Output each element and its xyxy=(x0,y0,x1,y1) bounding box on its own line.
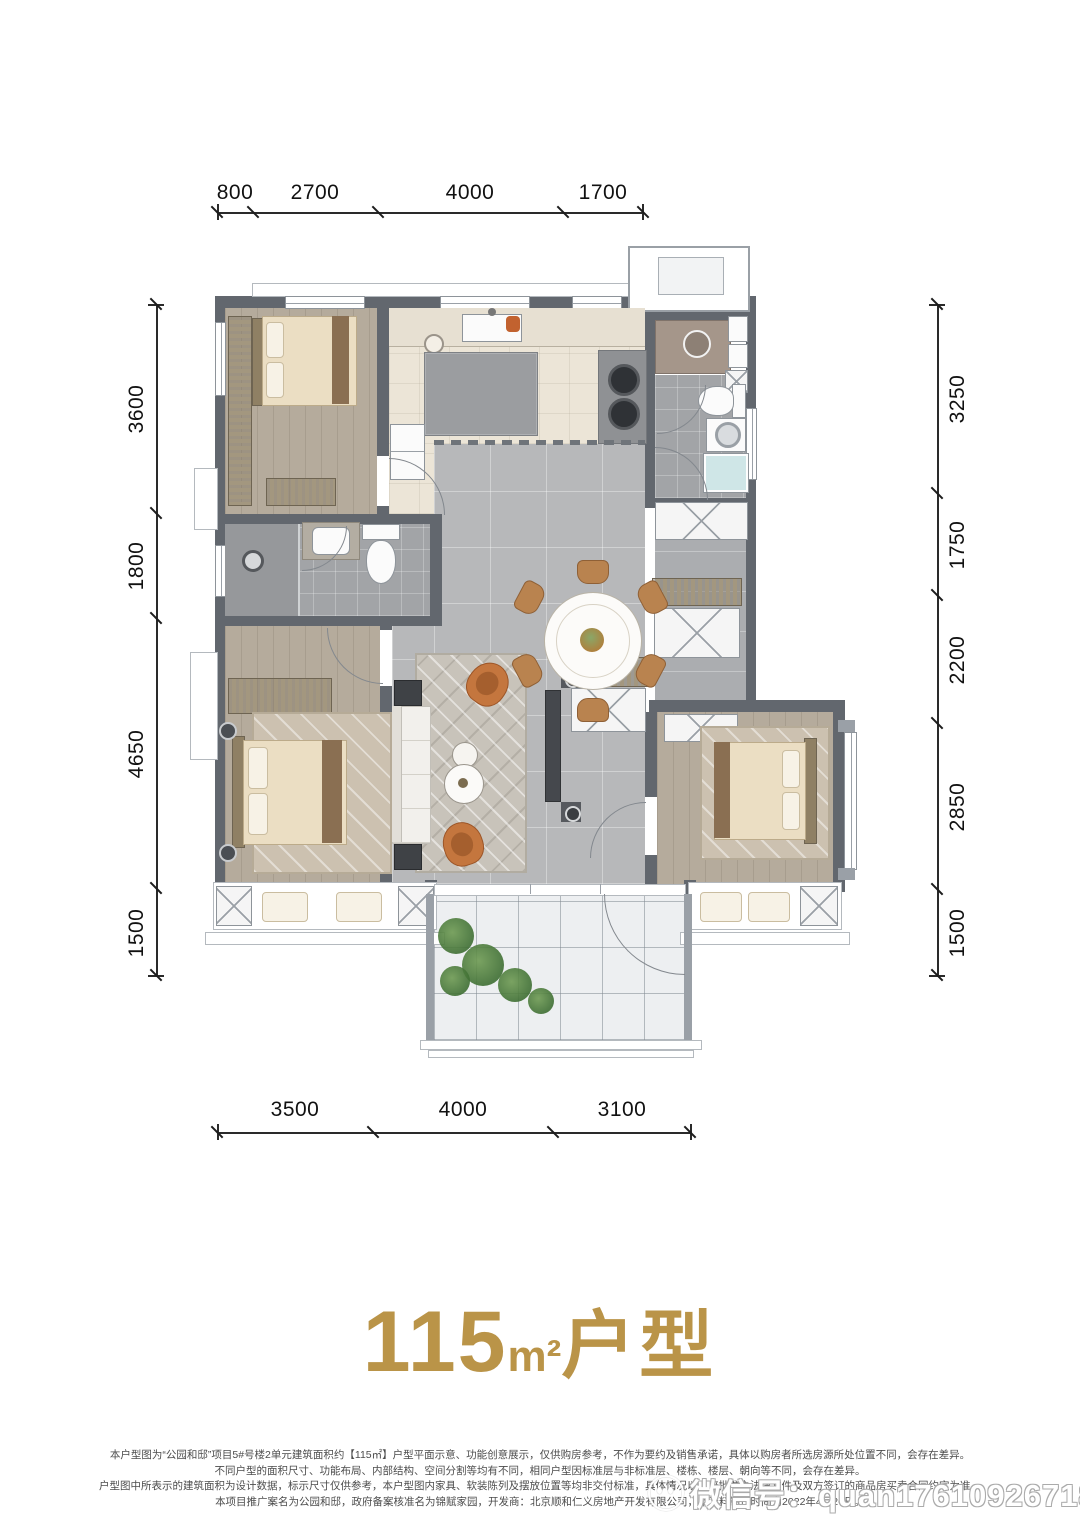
master-wardrobe xyxy=(228,678,332,714)
wall-bath1-bottom xyxy=(215,616,442,626)
dim-line xyxy=(156,304,158,976)
dim-label: 2700 xyxy=(270,181,360,205)
bay-cap-bottom xyxy=(838,868,855,880)
balcony-plant xyxy=(440,966,470,996)
bedroom2-pillow xyxy=(266,362,284,398)
dining-chair xyxy=(577,560,609,584)
bedroom2-pillow xyxy=(266,322,284,358)
balcony-plant xyxy=(528,988,554,1014)
laundry-cabinet xyxy=(728,316,748,342)
dim-label: 1700 xyxy=(558,181,648,205)
dim-line xyxy=(217,1132,690,1134)
laundry-cabinet xyxy=(728,344,748,368)
window-seat-cushion xyxy=(700,892,742,922)
dim-label: 1800 xyxy=(125,521,149,611)
wall-bed2-kitchen xyxy=(377,296,389,456)
dim-line xyxy=(937,304,939,976)
kitchen-threshold xyxy=(434,440,645,445)
plan-title-suffix: 户型 xyxy=(561,1304,717,1387)
dim-label: 4650 xyxy=(125,709,149,799)
bedroom2-wardrobe xyxy=(228,316,252,506)
dining-chair xyxy=(577,698,609,722)
disclaimer-line: 本户型图为“公园和邸”项目5#号楼2单元建筑面积约【115㎡】户型平面示意、功能… xyxy=(60,1448,1020,1464)
balcony-outer-sill xyxy=(428,1050,694,1058)
dim-label: 3100 xyxy=(577,1098,667,1122)
balcony-wall-left xyxy=(426,894,434,1046)
sofa-back xyxy=(392,706,402,842)
watermark-text: 微信号：quan17610926718 xyxy=(690,1470,1080,1515)
dim-label: 4000 xyxy=(418,1098,508,1122)
plan-title: 115m²户型 xyxy=(0,1286,1080,1393)
balcony-door-divider xyxy=(530,884,531,894)
toilet2-tank xyxy=(732,384,746,418)
balcony-wall-right xyxy=(684,894,692,1046)
dim-label: 1500 xyxy=(125,888,149,978)
window-bedroom2 xyxy=(285,296,365,309)
window-seat-xbox xyxy=(216,886,252,926)
dim-label: 1500 xyxy=(946,888,970,978)
wall-bed3-top xyxy=(649,700,845,712)
wechat-face-icon xyxy=(648,1475,684,1511)
wall-bath1-right xyxy=(430,514,442,626)
stove-burner-icon xyxy=(608,398,640,430)
nook-cabinet xyxy=(654,608,740,658)
shower-area xyxy=(225,524,300,616)
kitchen-island xyxy=(424,352,538,436)
niche-left-top xyxy=(194,468,218,530)
plan-title-unit: m² xyxy=(507,1332,561,1381)
window-seat-cushion xyxy=(336,892,382,922)
window-left-bedroom2 xyxy=(215,322,226,396)
speaker-icon xyxy=(565,806,581,822)
wall-lamp-icon xyxy=(219,722,237,740)
bedroom3-pillow xyxy=(782,750,800,788)
sofa-side-table xyxy=(394,680,422,706)
dim-label: 800 xyxy=(190,181,280,205)
stove-burner-icon xyxy=(608,364,640,396)
wall-bed3-left-a xyxy=(645,712,657,797)
bay-left-master xyxy=(190,652,218,760)
dim-label: 1750 xyxy=(946,500,970,590)
master-pillow xyxy=(248,793,268,835)
equipment-unit xyxy=(658,257,724,295)
dining-centerpiece-icon xyxy=(580,628,604,652)
kitchen-faucet-icon xyxy=(488,308,496,316)
toilet1-tank xyxy=(362,524,400,540)
kitchen-plate-icon xyxy=(424,334,444,354)
bedroom3-window-outer-sill xyxy=(680,932,850,945)
equipment-platform xyxy=(628,246,750,312)
washing-machine-drum-icon xyxy=(715,422,741,448)
balcony-door-divider xyxy=(600,884,601,894)
shower-icon xyxy=(242,550,264,572)
bedroom3-bed-runner xyxy=(714,742,730,838)
dim-label: 2850 xyxy=(946,762,970,852)
coffee-table-decor-icon xyxy=(458,778,468,788)
laundry-sink xyxy=(683,330,711,358)
balcony-rail xyxy=(420,1040,702,1050)
master-window-outer-sill xyxy=(205,932,445,945)
plan-title-area: 115 xyxy=(363,1294,508,1390)
balcony-plant xyxy=(498,968,532,1002)
dim-line xyxy=(217,212,643,214)
bay-window-bedroom3 xyxy=(844,732,857,870)
dim-label: 3600 xyxy=(125,364,149,454)
wall-lamp-icon xyxy=(219,844,237,862)
sofa-side-table xyxy=(394,844,422,870)
window-seat-xbox xyxy=(800,886,838,926)
dim-label: 3500 xyxy=(250,1098,340,1122)
toilet1-bowl xyxy=(366,540,396,584)
watermark: 微信号：quan17610926718 xyxy=(648,1470,1080,1515)
dim-label: 4000 xyxy=(425,181,515,205)
hall-closet xyxy=(655,502,748,540)
washbasin2 xyxy=(704,454,748,492)
master-pillow xyxy=(248,747,268,789)
window-seat-cushion xyxy=(262,892,308,922)
dim-label: 3250 xyxy=(946,354,970,444)
tv-panel xyxy=(545,690,561,802)
window-seat-cushion xyxy=(748,892,790,922)
bay-cap-top xyxy=(838,720,855,732)
bedroom3-pillow xyxy=(782,792,800,830)
bedroom2-bed-runner xyxy=(332,316,349,404)
kitchen-kettle-icon xyxy=(506,316,520,332)
bedroom2-bench xyxy=(266,478,336,506)
dim-label: 2200 xyxy=(946,615,970,705)
window-sill-top xyxy=(252,283,644,297)
master-bed-runner xyxy=(322,740,342,843)
